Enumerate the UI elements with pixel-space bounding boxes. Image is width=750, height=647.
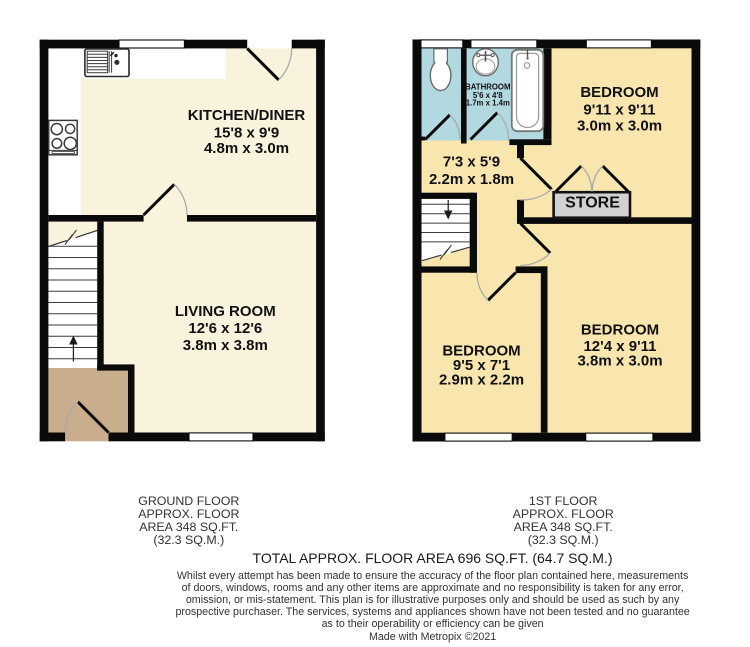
svg-text:KITCHEN/DINER: KITCHEN/DINER (188, 107, 306, 124)
svg-text:1.7m x 1.4m: 1.7m x 1.4m (466, 98, 510, 107)
svg-text:3.8m x 3.0m: 3.8m x 3.0m (577, 352, 662, 369)
svg-text:7'3 x 5'9: 7'3 x 5'9 (443, 153, 500, 170)
svg-text:4.8m x 3.0m: 4.8m x 3.0m (204, 140, 289, 157)
svg-text:LIVING ROOM: LIVING ROOM (175, 303, 276, 320)
svg-text:2.9m x 2.2m: 2.9m x 2.2m (439, 371, 524, 388)
svg-text:3.8m x 3.8m: 3.8m x 3.8m (183, 337, 268, 354)
svg-text:BEDROOM: BEDROOM (581, 321, 659, 338)
svg-text:12'6 x 12'6: 12'6 x 12'6 (188, 320, 262, 337)
svg-text:STORE: STORE (565, 195, 620, 212)
svg-text:BEDROOM: BEDROOM (580, 84, 658, 101)
svg-text:9'11 x 9'11: 9'11 x 9'11 (583, 101, 655, 118)
svg-text:2.2m x 1.8m: 2.2m x 1.8m (429, 171, 514, 188)
svg-text:3.0m x 3.0m: 3.0m x 3.0m (577, 117, 662, 134)
svg-text:15'8 x 9'9: 15'8 x 9'9 (214, 124, 280, 141)
